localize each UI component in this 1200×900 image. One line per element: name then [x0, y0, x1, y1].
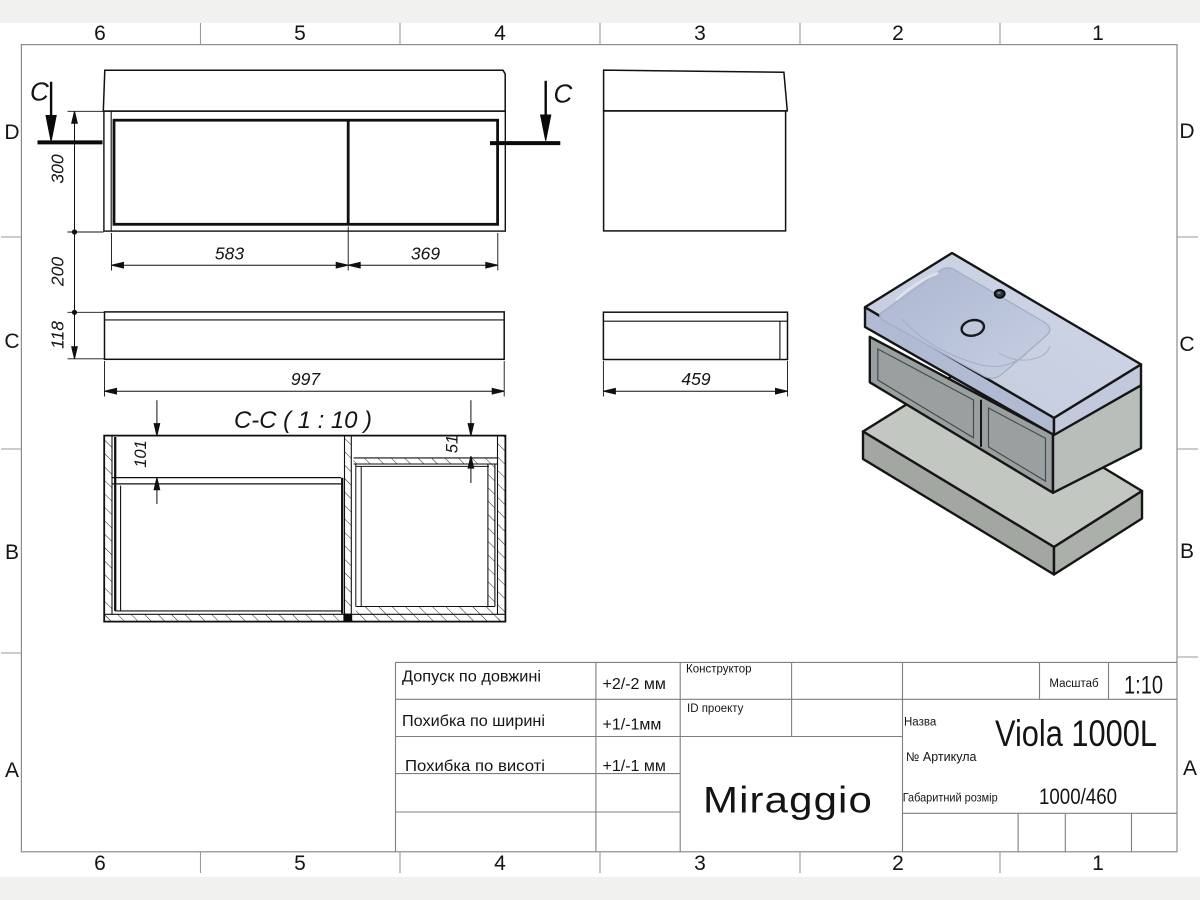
svg-text:459: 459 — [681, 369, 710, 389]
svg-text:C-C ( 1 : 10 ): C-C ( 1 : 10 ) — [234, 407, 372, 434]
svg-text:+2/-2 мм: +2/-2 мм — [603, 676, 666, 693]
svg-text:B: B — [5, 541, 19, 564]
svg-text:2: 2 — [892, 852, 904, 875]
svg-text:B: B — [1180, 540, 1194, 563]
svg-text:369: 369 — [411, 244, 440, 264]
svg-text:Назва: Назва — [904, 717, 937, 729]
svg-text:Похибка по висоті: Похибка по висоті — [405, 758, 545, 775]
svg-text:Конструктор: Конструктор — [686, 664, 752, 676]
svg-text:5: 5 — [294, 22, 306, 45]
svg-text:200: 200 — [48, 257, 68, 287]
svg-text:№ Артикула: № Артикула — [906, 750, 976, 764]
svg-text:300: 300 — [48, 154, 68, 183]
svg-text:D: D — [4, 121, 19, 144]
svg-text:4: 4 — [494, 852, 506, 875]
svg-text:C: C — [4, 330, 19, 353]
svg-text:101: 101 — [132, 440, 150, 468]
svg-text:A: A — [1183, 757, 1197, 780]
svg-text:+1/-1мм: +1/-1мм — [603, 717, 662, 734]
svg-text:1000/460: 1000/460 — [1039, 784, 1117, 809]
svg-text:583: 583 — [215, 244, 244, 264]
svg-text:3: 3 — [694, 852, 706, 875]
svg-text:A: A — [5, 759, 19, 782]
svg-text:3: 3 — [694, 22, 706, 45]
svg-text:Масштаб: Масштаб — [1049, 678, 1099, 690]
svg-text:+1/-1 мм: +1/-1 мм — [603, 758, 666, 775]
svg-text:6: 6 — [94, 852, 106, 875]
svg-text:118: 118 — [48, 321, 68, 349]
svg-text:Miraggio: Miraggio — [703, 780, 873, 821]
svg-text:Габаритний розмір: Габаритний розмір — [903, 791, 998, 805]
svg-text:997: 997 — [291, 369, 321, 389]
svg-text:Viola 1000L: Viola 1000L — [995, 713, 1157, 754]
svg-text:C: C — [554, 79, 573, 109]
svg-text:ID проекту: ID проекту — [687, 703, 744, 715]
svg-text:Допуск по довжині: Допуск по довжині — [402, 669, 541, 686]
svg-text:51: 51 — [444, 435, 462, 453]
svg-text:5: 5 — [294, 852, 306, 875]
svg-text:D: D — [1179, 120, 1194, 143]
svg-text:C: C — [1179, 333, 1194, 356]
svg-text:C: C — [30, 77, 49, 107]
svg-text:1: 1 — [1092, 852, 1104, 875]
svg-text:1: 1 — [1092, 22, 1104, 45]
svg-text:4: 4 — [494, 22, 506, 45]
svg-text:6: 6 — [94, 22, 106, 45]
svg-text:2: 2 — [892, 22, 904, 45]
svg-text:Похибка по ширині: Похибка по ширині — [402, 713, 545, 730]
svg-text:1:10: 1:10 — [1124, 672, 1163, 700]
